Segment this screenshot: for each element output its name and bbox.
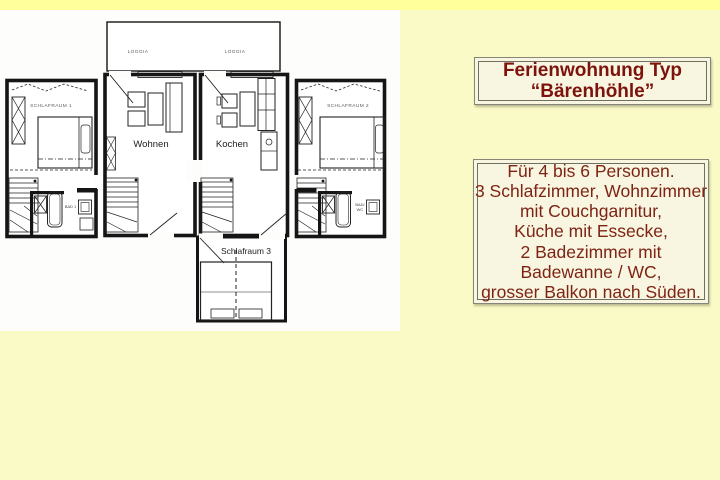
title-line1: Ferienwohnung Typ xyxy=(503,60,682,81)
bedroom1-label: SCHLAFRAUM 1 xyxy=(30,103,72,109)
info-line: Badewanne / WC, xyxy=(520,262,661,282)
kitchen-unit xyxy=(201,75,288,236)
floorplan-scan: LOGGIA LOGGIA xyxy=(0,10,400,331)
info-box-inner: Für 4 bis 6 Personen. 3 Schlafzimmer, Wo… xyxy=(477,163,705,300)
page: LOGGIA LOGGIA xyxy=(0,0,720,480)
kitchen-label: Kochen xyxy=(216,139,248,150)
bedroom3-label: Schlafraum 3 xyxy=(221,246,271,256)
bath2-label-line2: WC xyxy=(357,207,364,212)
loggia-left-label: LOGGIA xyxy=(128,49,149,55)
info-line: 3 Schlafzimmer, Wohnzimmer xyxy=(475,181,707,201)
living-label: Wohnen xyxy=(133,139,168,150)
info-line: Küche mit Essecke, xyxy=(514,221,668,241)
balcony-loggia: LOGGIA LOGGIA xyxy=(107,22,280,71)
top-strip xyxy=(0,0,720,10)
info-line: 2 Badezimmer mit xyxy=(520,242,661,262)
floorplan-image: LOGGIA LOGGIA xyxy=(0,10,400,331)
info-line: mit Couchgarnitur, xyxy=(520,201,662,221)
info-line: grosser Balkon nach Süden. xyxy=(481,282,701,302)
info-box: Für 4 bis 6 Personen. 3 Schlafzimmer, Wo… xyxy=(473,159,709,304)
bedroom2-label: SCHLAFRAUM 2 xyxy=(327,103,369,109)
info-line: Für 4 bis 6 Personen. xyxy=(507,161,674,181)
title-box-inner: Ferienwohnung Typ “Bärenhöhle” xyxy=(478,61,707,101)
title-box: Ferienwohnung Typ “Bärenhöhle” xyxy=(474,57,711,105)
bath1-label: BAD 1 xyxy=(65,204,77,209)
loggia-right-label: LOGGIA xyxy=(225,49,246,55)
title-line2: “Bärenhöhle” xyxy=(531,81,655,102)
